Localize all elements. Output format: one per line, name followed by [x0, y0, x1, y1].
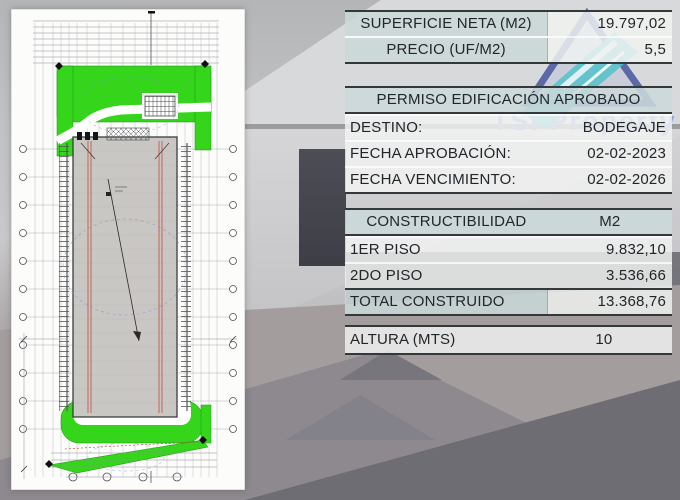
permit-table: PERMISO EDIFICACIÓN APROBADO DESTINO: BO… [345, 86, 672, 194]
precio-value: 5,5 [548, 38, 672, 62]
superficie-value: 19.797,02 [548, 12, 672, 36]
data-panel: SUPERFICIE NETA (M2) 19.797,02 PRECIO (U… [345, 0, 672, 355]
summary-table: SUPERFICIE NETA (M2) 19.797,02 PRECIO (U… [345, 10, 672, 64]
fecha-aprobacion-value: 02-02-2023 [535, 142, 672, 166]
background-dark-doorway [299, 149, 346, 266]
table-row: PRECIO (UF/M2) 5,5 [345, 36, 672, 62]
constructibility-header-unit: M2 [548, 210, 672, 234]
plan-building [59, 128, 191, 417]
destino-value: BODEGAJE [535, 116, 672, 140]
total-value: 13.368,76 [548, 290, 672, 314]
site-plan [11, 9, 245, 490]
plan-access-ramp [107, 128, 149, 140]
table-row: 2DO PISO 3.536,66 [345, 262, 672, 288]
precio-label: PRECIO (UF/M2) [345, 38, 548, 62]
plan-loading-docks [77, 132, 98, 140]
piso1-value: 9.832,10 [535, 238, 672, 262]
fecha-vencimiento-value: 02-02-2026 [535, 168, 672, 192]
destino-label: DESTINO: [345, 116, 535, 140]
fecha-vencimiento-label: FECHA VENCIMIENTO: [345, 168, 535, 192]
piso1-label: 1ER PISO [345, 238, 535, 262]
fecha-aprobacion-label: FECHA APROBACIÓN: [345, 142, 535, 166]
constructibility-header: CONSTRUCTIBILIDAD M2 [345, 210, 672, 236]
constructibility-table: CONSTRUCTIBILIDAD M2 1ER PISO 9.832,10 2… [345, 208, 672, 316]
piso2-label: 2DO PISO [345, 264, 535, 288]
superficie-label: SUPERFICIE NETA (M2) [345, 12, 548, 36]
altura-label: ALTURA (MTS) [345, 327, 542, 353]
height-table: ALTURA (MTS) 10 [345, 325, 672, 355]
constructibility-header-label: CONSTRUCTIBILIDAD [345, 210, 548, 234]
altura-value: 10 [542, 327, 672, 353]
table-row: FECHA APROBACIÓN: 02-02-2023 [345, 140, 672, 166]
plan-ramp-right [181, 143, 191, 411]
total-label: TOTAL CONSTRUIDO [345, 290, 548, 314]
table-row: FECHA VENCIMIENTO: 02-02-2026 [345, 166, 672, 192]
piso2-value: 3.536,66 [535, 264, 672, 288]
permit-header: PERMISO EDIFICACIÓN APROBADO [345, 88, 672, 114]
table-row: ALTURA (MTS) 10 [345, 327, 672, 353]
total-row: TOTAL CONSTRUIDO 13.368,76 [345, 288, 672, 314]
table-row: SUPERFICIE NETA (M2) 19.797,02 [345, 12, 672, 36]
plan-parking-grid [142, 93, 178, 119]
table-row: 1ER PISO 9.832,10 [345, 236, 672, 262]
table-row: DESTINO: BODEGAJE [345, 114, 672, 140]
